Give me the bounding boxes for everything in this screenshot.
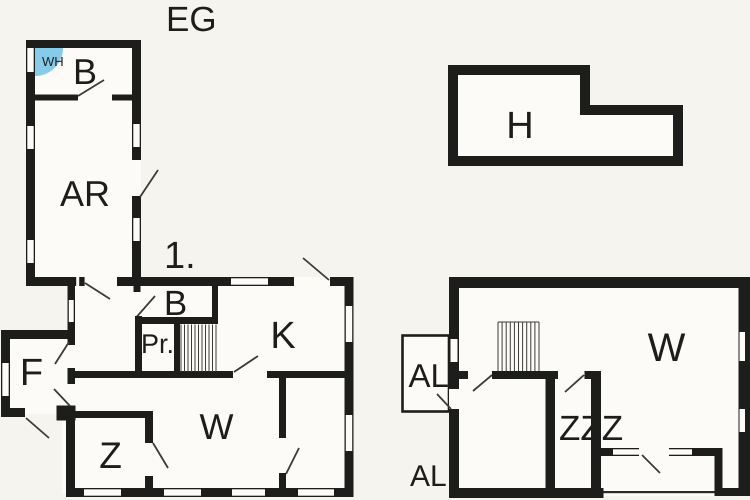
svg-text:EG: EG bbox=[166, 0, 217, 39]
svg-text:W: W bbox=[648, 326, 686, 370]
svg-text:F: F bbox=[20, 352, 43, 394]
svg-text:Z: Z bbox=[99, 435, 122, 476]
svg-text:K: K bbox=[270, 315, 295, 357]
svg-text:AL: AL bbox=[409, 357, 449, 394]
svg-text:1.: 1. bbox=[164, 235, 196, 277]
svg-text:ZZZ: ZZZ bbox=[559, 409, 623, 448]
svg-text:Pr.: Pr. bbox=[141, 329, 174, 359]
svg-text:W: W bbox=[200, 406, 234, 447]
svg-text:AR: AR bbox=[60, 173, 110, 214]
svg-text:B: B bbox=[164, 284, 187, 323]
svg-text:AL: AL bbox=[410, 460, 447, 493]
svg-text:WH: WH bbox=[42, 54, 64, 69]
svg-text:B: B bbox=[73, 51, 97, 92]
svg-text:H: H bbox=[506, 105, 533, 147]
